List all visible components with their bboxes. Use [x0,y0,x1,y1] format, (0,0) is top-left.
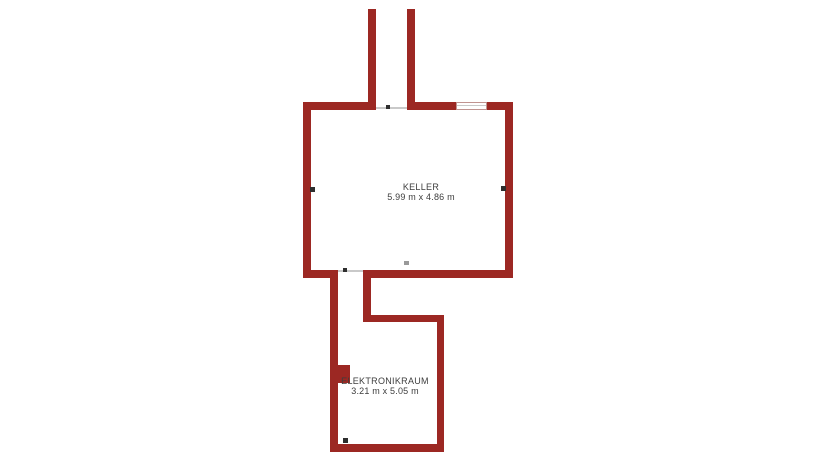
room-size: 5.99 m x 4.86 m [321,192,521,202]
keller-top-wall-left [303,102,376,110]
keller-bottom-wall-marker [404,261,409,265]
corridor-left-wall [368,9,376,110]
keller-bottom-wall-right [363,270,513,278]
keller-door-threshold-line [338,270,363,272]
keller-label: KELLER 5.99 m x 4.86 m [321,182,521,202]
corridor-threshold-line [376,107,407,109]
keller-left-wall-marker [310,187,315,192]
corridor-wall-marker [386,105,390,109]
room-name: ELEKTRONIKRAUM [285,376,485,386]
corridor-right-wall [407,9,415,110]
elektronikraum-label: ELEKTRONIKRAUM 3.21 m x 5.05 m [285,376,485,396]
elektronikraum-bottom-wall-marker [343,438,348,443]
keller-door-marker [343,268,347,272]
floorplan-canvas: KELLER 5.99 m x 4.86 m ELEKTRONIKRAUM 3.… [0,0,820,465]
elektronikraum-step-wall [363,315,444,322]
room-size: 3.21 m x 5.05 m [285,386,485,396]
window [456,102,487,110]
keller-bottom-wall-left [303,270,338,278]
room-name: KELLER [321,182,521,192]
elektronikraum-bottom-wall [330,444,444,452]
keller-top-wall-mid [407,102,456,110]
window-pane-line [457,105,486,106]
